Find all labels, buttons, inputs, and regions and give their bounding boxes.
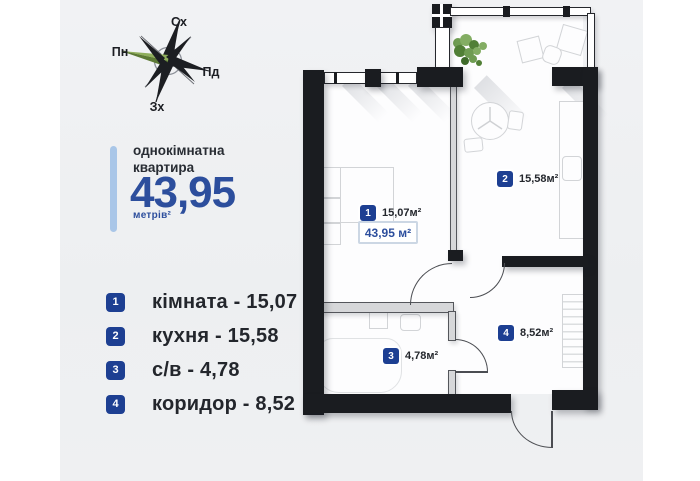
window-mullion	[503, 6, 510, 17]
floor-plan: 1 15,07м² 43,95 м² 2 15,58м² 3 4,78м² 4 …	[0, 0, 700, 481]
bottom-wall	[303, 394, 511, 413]
bottom-right-wall	[552, 390, 598, 410]
plan-total-area: 43,95 м²	[358, 221, 418, 244]
washer-outline	[369, 312, 388, 329]
room-4-area-label: 8,52м²	[520, 327, 553, 339]
room-2-area-label: 15,58м²	[519, 173, 558, 185]
window-mullion	[396, 72, 399, 84]
room-3-badge: 3	[383, 348, 399, 364]
window-mullion	[563, 6, 570, 17]
bathroom-door-leaf	[455, 371, 488, 373]
room-2-badge: 2	[497, 171, 513, 187]
right-wall	[583, 67, 598, 407]
entry-door-leaf	[551, 411, 553, 448]
room-4-badge: 4	[498, 325, 514, 341]
terrace-column-cross	[432, 14, 452, 17]
room-1-badge: 1	[360, 205, 376, 221]
room-1-area-label: 15,07м²	[382, 207, 421, 219]
bathtub-outline	[317, 338, 402, 393]
kitchen-bottom-wall	[502, 256, 588, 267]
chair-outline	[507, 110, 524, 131]
chair-outline	[463, 137, 483, 153]
kitchen-sink	[562, 156, 582, 181]
bathroom-right-wall	[448, 370, 456, 396]
bathroom-right-wall	[448, 311, 456, 341]
entry-door-arc	[511, 411, 552, 448]
left-wall	[303, 70, 324, 415]
divider-end-cap	[448, 250, 463, 261]
room-divider-wall	[450, 84, 457, 252]
bathroom-sink	[400, 314, 421, 331]
window-pier	[365, 69, 381, 87]
window-mullion	[334, 72, 337, 84]
terrace-window-left	[435, 27, 450, 68]
table-legs-icon	[471, 102, 509, 140]
top-mid-wall	[417, 67, 463, 87]
terrace-window-right	[587, 13, 595, 70]
room-3-area-label: 4,78м²	[405, 350, 438, 362]
